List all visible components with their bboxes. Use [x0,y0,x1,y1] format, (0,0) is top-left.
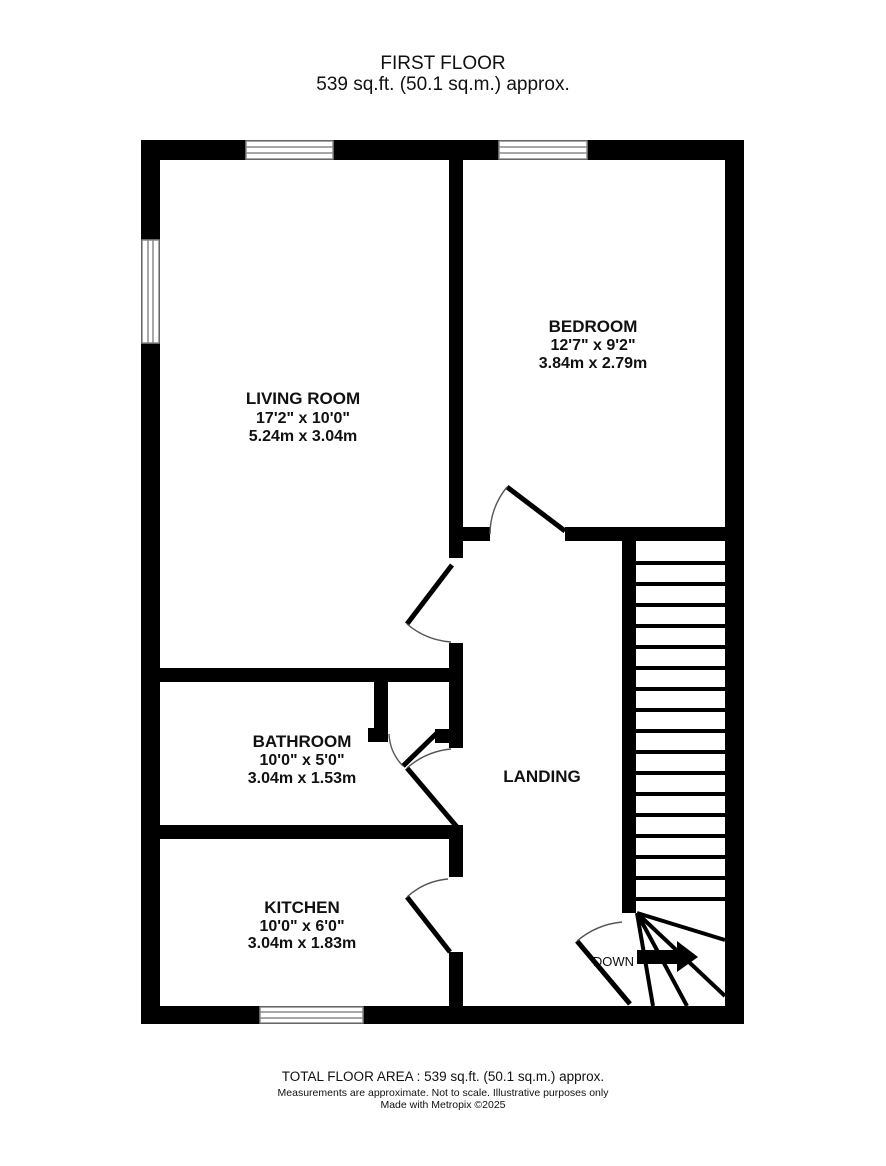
kitchen-name: KITCHEN [264,898,340,917]
bedroom-label: BEDROOM 12'7" x 9'2" 3.84m x 2.79m [539,317,648,372]
floor-plan-drawing: FIRST FLOOR 539 sq.ft. (50.1 sq.m.) appr… [0,0,886,1166]
stair-side-wall [622,541,636,913]
living-room-metric: 5.24m x 3.04m [249,428,358,445]
staircase: DOWN [593,563,725,1006]
bathroom-lobby-wall [374,682,388,728]
bedroom-landing-wall [565,527,725,541]
kitchen-divider-wall-lower [449,952,463,1006]
kitchen-bottom-window [260,1007,363,1023]
bedroom-top-window [499,141,587,159]
living-room-left-window [142,240,159,343]
floor-area-subtitle: 539 sq.ft. (50.1 sq.m.) approx. [316,74,569,95]
bathroom-name: BATHROOM [253,732,352,751]
bathroom-metric: 3.04m x 1.53m [248,770,357,787]
top-wall [141,140,744,160]
living-room-top-window [246,141,333,159]
floor-plan-page: FIRST FLOOR 539 sq.ft. (50.1 sq.m.) appr… [0,0,886,1166]
bedroom-name: BEDROOM [549,317,638,336]
doors [389,487,630,1004]
kitchen-metric: 3.04m x 1.83m [248,935,357,952]
bathroom-label: BATHROOM 10'0" x 5'0" 3.04m x 1.53m [248,732,357,787]
kitchen-divider-wall-upper [449,825,463,877]
bathroom-kitchen-wall [160,825,449,839]
windows [142,141,587,1023]
landing-divider-wall-upper [449,643,463,748]
room-labels: LIVING ROOM 17'2" x 10'0" 5.24m x 3.04m … [246,317,647,952]
bedroom-metric: 3.84m x 2.79m [539,355,648,372]
landing-door [407,749,457,827]
plan-footer: TOTAL FLOOR AREA : 539 sq.ft. (50.1 sq.m… [278,1069,610,1111]
bathroom-imperial: 10'0" x 5'0" [259,752,344,769]
living-room-label: LIVING ROOM 17'2" x 10'0" 5.24m x 3.04m [246,389,360,445]
living-room-name: LIVING ROOM [246,389,360,408]
bedroom-imperial: 12'7" x 9'2" [550,337,635,354]
bedroom-door [490,487,565,534]
bedroom-door-jamb-stub [463,527,490,541]
landing-name: LANDING [503,767,580,786]
total-floor-area: TOTAL FLOOR AREA : 539 sq.ft. (50.1 sq.m… [282,1069,604,1084]
bathroom-lobby-foot [368,728,388,742]
kitchen-label: KITCHEN 10'0" x 6'0" 3.04m x 1.83m [248,898,357,952]
kitchen-door [407,879,450,952]
floor-title: FIRST FLOOR [380,53,505,74]
living-bedroom-divider-wall [449,160,463,558]
living-room-imperial: 17'2" x 10'0" [256,410,350,427]
living-bathroom-wall [160,668,449,682]
bottom-wall [141,1006,744,1024]
kitchen-imperial: 10'0" x 6'0" [259,918,344,935]
stair-treads [636,563,725,899]
disclaimer: Measurements are approximate. Not to sca… [278,1087,610,1099]
living-room-door [407,565,452,642]
credit: Made with Metropix ©2025 [380,1099,505,1111]
bathroom-door [389,732,438,766]
right-wall [725,140,744,1024]
plan-title: FIRST FLOOR 539 sq.ft. (50.1 sq.m.) appr… [316,53,569,95]
